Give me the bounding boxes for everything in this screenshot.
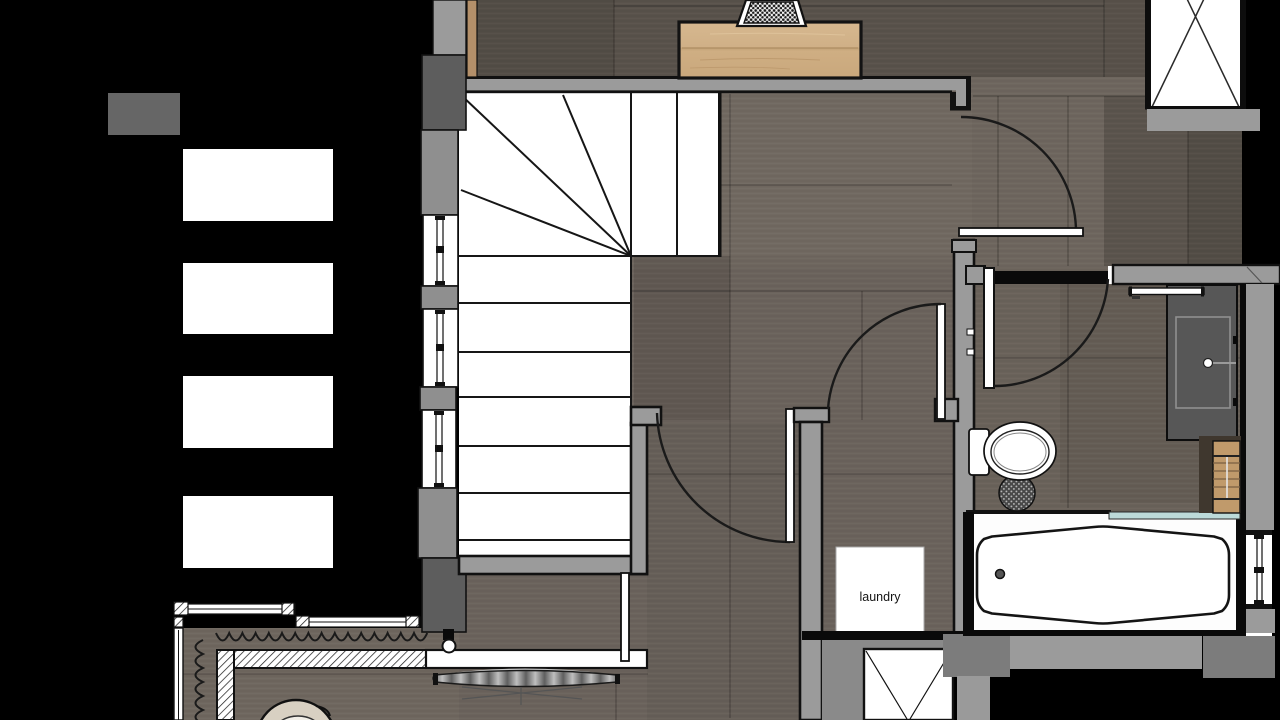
svg-text:laundry: laundry bbox=[860, 590, 902, 604]
